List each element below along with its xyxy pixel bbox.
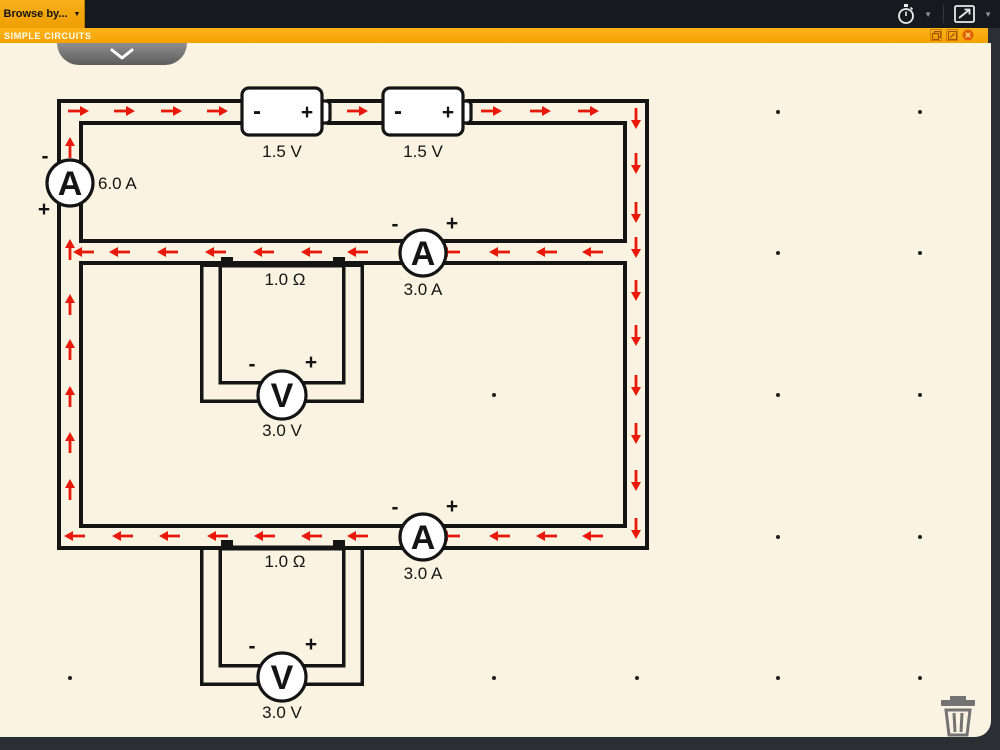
graph-tool-caret-icon[interactable]: ▼ <box>982 10 994 19</box>
ammeter-main-reading: 6.0 A <box>98 174 137 193</box>
ammeter-bottom-minus: - <box>392 496 399 519</box>
ammeter-mid-reading: 3.0 A <box>404 280 443 299</box>
browse-by-button[interactable]: Browse by... ▼ <box>0 0 85 28</box>
ammeter-mid-plus: + <box>446 212 458 235</box>
voltmeter-mid-minus: - <box>249 353 256 376</box>
battery-1-voltage: 1.5 V <box>262 142 302 161</box>
browse-by-caret-icon: ▼ <box>74 11 81 18</box>
top-toolbar: Browse by... ▼ ▼ ▼ <box>0 0 1000 28</box>
ammeter-main-plus: + <box>38 198 50 221</box>
toolbar-divider <box>943 5 944 23</box>
battery-2-plus: + <box>442 101 454 124</box>
close-window-icon[interactable] <box>962 29 974 41</box>
battery-1[interactable]: - + 1.5 V <box>242 88 330 161</box>
voltmeter-bottom[interactable]: - + V 3.0 V <box>249 633 318 722</box>
ammeter-bottom-plus: + <box>446 495 458 518</box>
voltmeter-bottom-plus: + <box>305 633 317 656</box>
voltmeter-bottom-letter: V <box>271 659 294 697</box>
graph-tool-icon[interactable] <box>953 2 977 26</box>
resistor-bottom-value: 1.0 Ω <box>264 552 305 571</box>
circuit-drawing[interactable]: 1.0 Ω 1.0 Ω - + 1.5 V - + 1.5 V - + <box>0 43 991 737</box>
gizmo-titlebar: SIMPLE CIRCUITS <box>0 28 988 43</box>
trash-button[interactable] <box>941 696 975 735</box>
stopwatch-icon[interactable] <box>895 2 917 26</box>
battery-1-plus: + <box>301 101 313 124</box>
voltmeter-mid-plus: + <box>305 351 317 374</box>
battery-2-minus: - <box>394 98 402 125</box>
ammeter-main-minus: - <box>42 145 49 168</box>
simulation-canvas[interactable]: 1.0 Ω 1.0 Ω - + 1.5 V - + 1.5 V - + <box>0 43 991 737</box>
voltmeter-mid[interactable]: - + V 3.0 V <box>249 351 318 440</box>
edit-window-icon[interactable] <box>946 29 958 41</box>
ammeter-bottom-reading: 3.0 A <box>404 564 443 583</box>
restore-window-icon[interactable] <box>930 29 942 41</box>
ammeter-mid-minus: - <box>392 213 399 236</box>
battery-1-minus: - <box>253 98 261 125</box>
voltmeter-mid-letter: V <box>271 377 294 415</box>
voltmeter-bottom-minus: - <box>249 635 256 658</box>
ammeter-main[interactable]: - + A 6.0 A <box>38 145 138 221</box>
voltmeter-mid-reading: 3.0 V <box>262 421 302 440</box>
grid-dots <box>68 110 922 680</box>
battery-2[interactable]: - + 1.5 V <box>383 88 471 161</box>
ammeter-bottom-letter: A <box>411 519 436 557</box>
battery-2-voltage: 1.5 V <box>403 142 443 161</box>
wire-fill <box>61 103 645 675</box>
voltmeter-bottom-reading: 3.0 V <box>262 703 302 722</box>
browse-by-label: Browse by... <box>4 8 68 20</box>
resistor-mid-value: 1.0 Ω <box>264 270 305 289</box>
stopwatch-caret-icon[interactable]: ▼ <box>922 10 934 19</box>
ammeter-mid-letter: A <box>411 235 436 273</box>
gizmo-title: SIMPLE CIRCUITS <box>0 31 92 41</box>
ammeter-main-letter: A <box>58 165 83 203</box>
